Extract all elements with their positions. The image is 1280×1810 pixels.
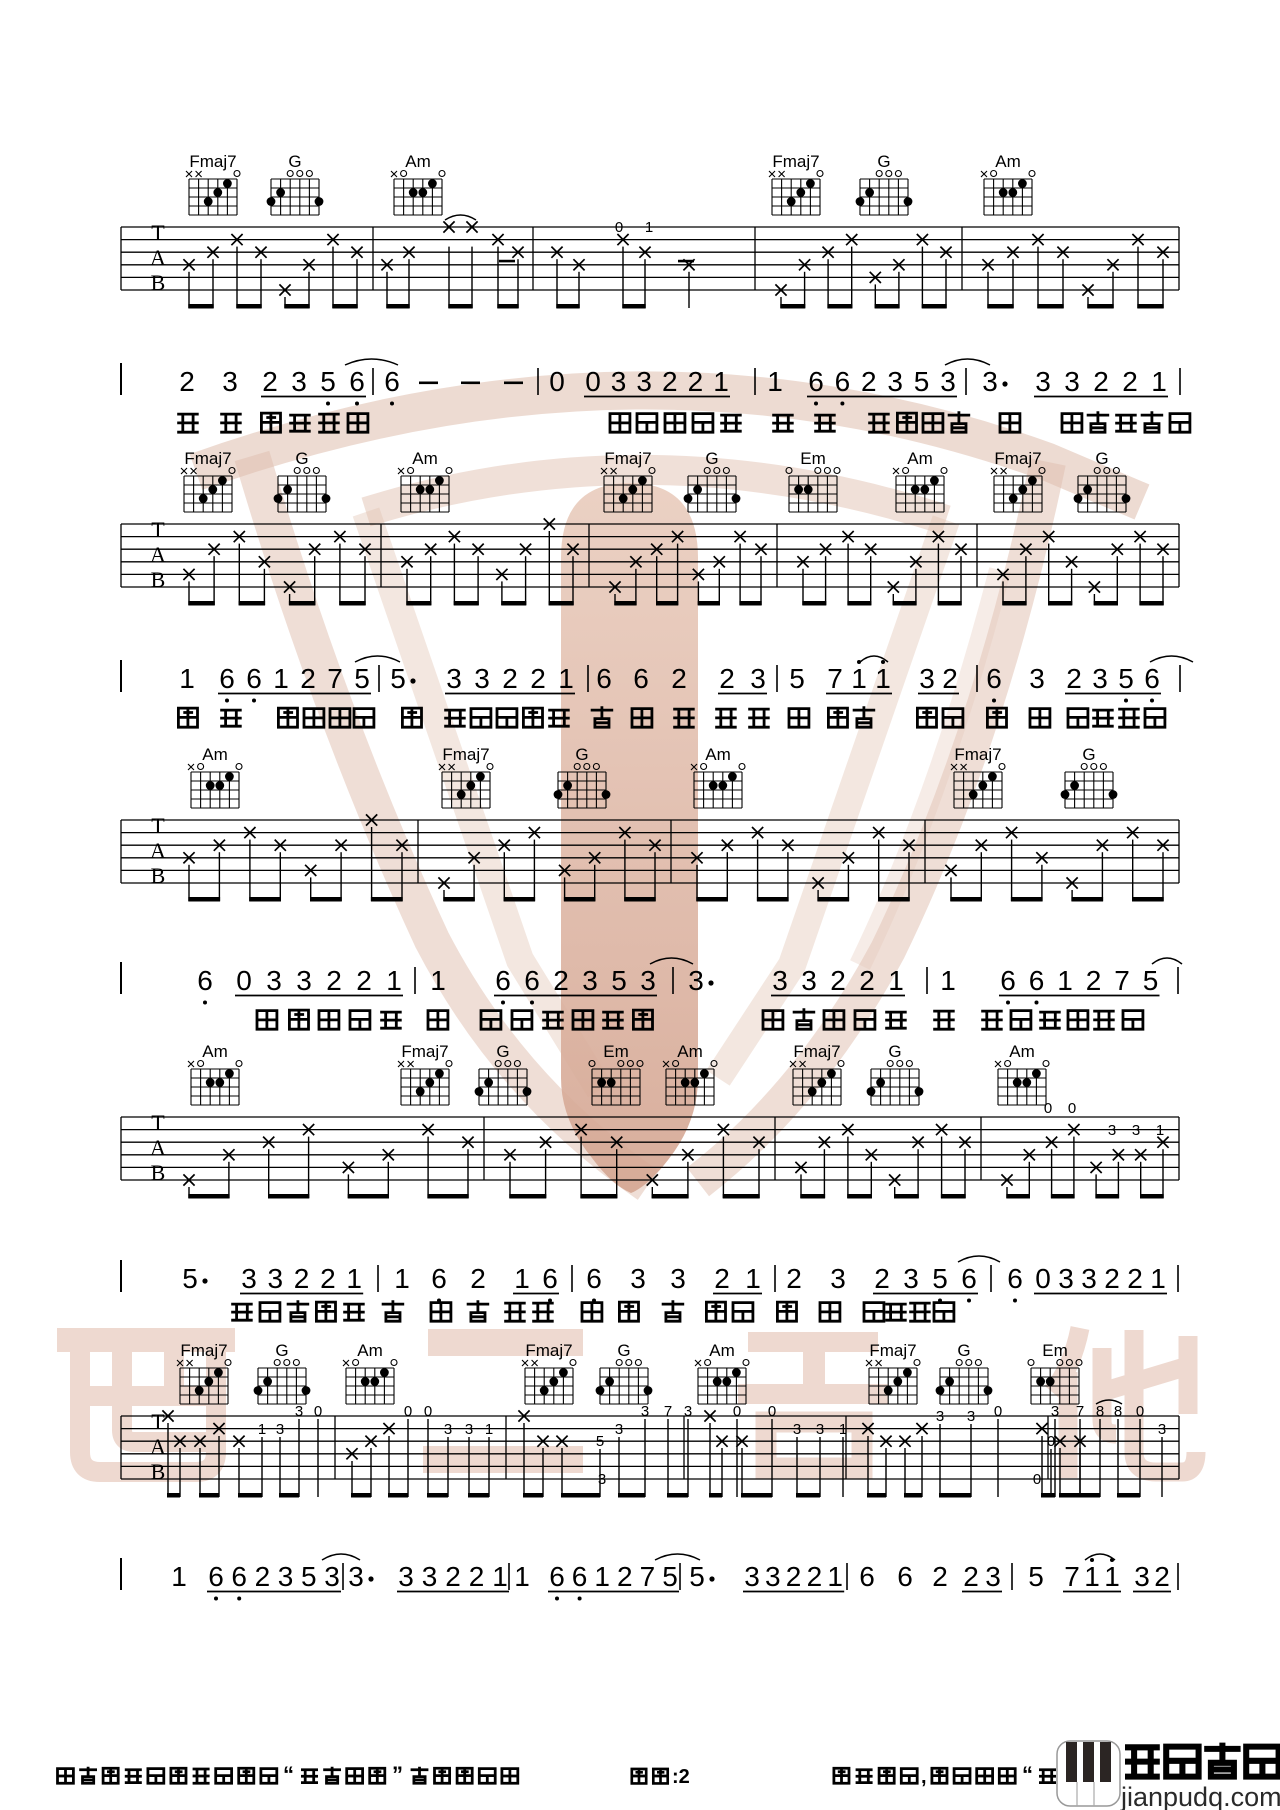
svg-text:“: “ [1022, 1762, 1033, 1787]
svg-text:Em: Em [1042, 1341, 1068, 1360]
svg-text:1: 1 [1104, 1561, 1120, 1592]
svg-text:5: 5 [390, 663, 406, 694]
svg-text:6: 6 [1029, 965, 1045, 996]
svg-text:3: 3 [422, 1561, 438, 1592]
svg-text:1: 1 [179, 663, 195, 694]
svg-text:0: 0 [1033, 1471, 1041, 1488]
svg-text:7: 7 [327, 663, 343, 694]
svg-text:7: 7 [1064, 1561, 1080, 1592]
svg-text:3: 3 [967, 1408, 975, 1425]
svg-text:Em: Em [603, 1042, 629, 1061]
svg-text:2: 2 [859, 965, 875, 996]
svg-text:2: 2 [553, 965, 569, 996]
svg-text:5: 5 [662, 1561, 678, 1592]
svg-text:G: G [888, 1042, 901, 1061]
svg-text:6: 6 [572, 1561, 588, 1592]
svg-text:1: 1 [485, 1421, 493, 1438]
svg-text:1: 1 [745, 1263, 761, 1294]
svg-text:3: 3 [398, 1561, 414, 1592]
svg-text:2: 2 [326, 965, 342, 996]
svg-text:Am: Am [1009, 1042, 1035, 1061]
svg-text:1: 1 [888, 965, 904, 996]
svg-text:3: 3 [1132, 1122, 1140, 1139]
svg-text:0: 0 [768, 1403, 776, 1420]
svg-text:G: G [575, 745, 588, 764]
svg-text:2: 2 [262, 366, 278, 397]
svg-text:1: 1 [1151, 366, 1167, 397]
svg-text:3: 3 [630, 1263, 646, 1294]
svg-text:6: 6 [586, 1263, 602, 1294]
svg-text:2: 2 [470, 1263, 486, 1294]
svg-text:2: 2 [719, 663, 735, 694]
svg-text:3: 3 [830, 1263, 846, 1294]
svg-text:0: 0 [314, 1403, 322, 1420]
svg-text:2: 2 [714, 1263, 730, 1294]
svg-text:T: T [151, 1110, 165, 1135]
svg-text:1: 1 [346, 1263, 362, 1294]
svg-text:3: 3 [276, 1421, 284, 1438]
svg-text:A: A [150, 542, 166, 567]
svg-text:Am: Am [709, 1341, 735, 1360]
svg-text:G: G [1095, 449, 1108, 468]
svg-text:B: B [151, 270, 166, 295]
svg-text:G: G [877, 152, 890, 171]
svg-text:5: 5 [1143, 965, 1159, 996]
svg-text:,: , [921, 1766, 927, 1788]
svg-text:2: 2 [617, 1561, 633, 1592]
svg-text:2: 2 [294, 1263, 310, 1294]
svg-text:1: 1 [645, 219, 653, 236]
svg-text:5: 5 [354, 663, 370, 694]
svg-text:3: 3 [750, 663, 766, 694]
svg-text:G: G [617, 1341, 630, 1360]
svg-text:0: 0 [585, 366, 601, 397]
svg-text:G: G [295, 449, 308, 468]
svg-text:T: T [151, 220, 165, 245]
svg-text:3: 3 [1058, 1263, 1074, 1294]
svg-text:6: 6 [897, 1561, 913, 1592]
svg-text:3: 3 [1051, 1403, 1059, 1420]
svg-text:Fmaj7: Fmaj7 [180, 1341, 227, 1360]
svg-text:Fmaj7: Fmaj7 [954, 745, 1001, 764]
svg-text:2: 2 [445, 1561, 461, 1592]
svg-text:3: 3 [1064, 366, 1080, 397]
svg-text:3: 3 [919, 663, 935, 694]
svg-text:A: A [150, 1135, 166, 1160]
svg-text:1: 1 [1057, 965, 1073, 996]
svg-text:0: 0 [733, 1403, 741, 1420]
svg-text:6: 6 [859, 1561, 875, 1592]
svg-text:3: 3 [744, 1561, 760, 1592]
svg-text:3: 3 [982, 366, 998, 397]
svg-text:Fmaj7: Fmaj7 [189, 152, 236, 171]
svg-text:0: 0 [424, 1403, 432, 1420]
svg-text:3: 3 [985, 1561, 1001, 1592]
svg-text:3: 3 [940, 366, 956, 397]
svg-text:1: 1 [1084, 1561, 1100, 1592]
svg-text:2: 2 [671, 663, 687, 694]
svg-text:1: 1 [492, 1561, 508, 1592]
svg-text:Fmaj7: Fmaj7 [793, 1042, 840, 1061]
svg-text:Fmaj7: Fmaj7 [442, 745, 489, 764]
svg-text:3: 3 [474, 663, 490, 694]
svg-text:1: 1 [430, 965, 446, 996]
svg-text:2: 2 [1093, 366, 1109, 397]
svg-text:1: 1 [258, 1421, 266, 1438]
svg-text:3: 3 [765, 1561, 781, 1592]
svg-text:Am: Am [357, 1341, 383, 1360]
svg-text:6: 6 [208, 1561, 224, 1592]
svg-text:2: 2 [786, 1561, 802, 1592]
svg-text:5: 5 [1118, 663, 1134, 694]
svg-text:jianpudq.com: jianpudq.com [1120, 1782, 1280, 1810]
svg-text:3: 3 [903, 1263, 919, 1294]
svg-text:6: 6 [835, 366, 851, 397]
svg-text:3: 3 [688, 965, 704, 996]
svg-text:3: 3 [772, 965, 788, 996]
svg-text:6: 6 [1144, 663, 1160, 694]
svg-text:3: 3 [684, 1403, 692, 1420]
svg-text:1: 1 [594, 1561, 610, 1592]
svg-text:Fmaj7: Fmaj7 [184, 449, 231, 468]
svg-text:2: 2 [807, 1561, 823, 1592]
svg-text:3: 3 [1092, 663, 1108, 694]
svg-text:2: 2 [942, 663, 958, 694]
svg-text:3: 3 [1134, 1561, 1150, 1592]
svg-text:6: 6 [384, 366, 400, 397]
svg-text:3: 3 [296, 965, 312, 996]
svg-text:3: 3 [801, 965, 817, 996]
svg-text:0: 0 [236, 965, 252, 996]
svg-text:B: B [151, 863, 166, 888]
svg-text:6: 6 [246, 663, 262, 694]
svg-text:3: 3 [636, 366, 652, 397]
svg-text:6: 6 [197, 965, 213, 996]
svg-text:B: B [151, 1459, 166, 1484]
svg-text:3: 3 [1029, 663, 1045, 694]
svg-text:Fmaj7: Fmaj7 [869, 1341, 916, 1360]
svg-text:2: 2 [1154, 1561, 1170, 1592]
svg-text:1: 1 [514, 1561, 530, 1592]
svg-text:8: 8 [1114, 1403, 1122, 1420]
svg-text:2: 2 [963, 1561, 979, 1592]
svg-text:2: 2 [1104, 1263, 1120, 1294]
svg-text:6: 6 [349, 366, 365, 397]
svg-text:Fmaj7: Fmaj7 [525, 1341, 572, 1360]
svg-text:”: ” [392, 1762, 403, 1787]
svg-text:7: 7 [664, 1403, 672, 1420]
svg-text:7: 7 [1076, 1403, 1084, 1420]
svg-text:8: 8 [1096, 1403, 1104, 1420]
svg-text:6: 6 [495, 965, 511, 996]
svg-text:2: 2 [932, 1561, 948, 1592]
svg-text:2: 2 [786, 1263, 802, 1294]
svg-text:3: 3 [611, 366, 627, 397]
svg-text:3: 3 [268, 1263, 284, 1294]
svg-text:T: T [151, 813, 165, 838]
svg-text:6: 6 [1007, 1263, 1023, 1294]
svg-text:7: 7 [1114, 965, 1130, 996]
svg-text:1: 1 [767, 366, 783, 397]
svg-text:6: 6 [961, 1263, 977, 1294]
svg-text:6: 6 [986, 663, 1002, 694]
svg-text:3: 3 [241, 1263, 257, 1294]
svg-text:Fmaj7: Fmaj7 [772, 152, 819, 171]
svg-text:3: 3 [1035, 366, 1051, 397]
svg-text:0: 0 [615, 219, 623, 236]
svg-text:G: G [496, 1042, 509, 1061]
svg-text:Am: Am [412, 449, 438, 468]
svg-text:1: 1 [558, 663, 574, 694]
svg-text:2: 2 [530, 663, 546, 694]
svg-text:3: 3 [348, 1561, 364, 1592]
svg-text:1: 1 [851, 663, 867, 694]
svg-text:2: 2 [502, 663, 518, 694]
svg-text:3: 3 [1158, 1421, 1166, 1438]
svg-text:5: 5 [932, 1263, 948, 1294]
svg-text:G: G [288, 152, 301, 171]
svg-text:0: 0 [994, 1403, 1002, 1420]
svg-text:1: 1 [273, 663, 289, 694]
svg-text:3: 3 [324, 1561, 340, 1592]
svg-text:6: 6 [1000, 965, 1016, 996]
svg-text:1: 1 [827, 1561, 843, 1592]
svg-text:5: 5 [789, 663, 805, 694]
svg-text:Am: Am [202, 1042, 228, 1061]
svg-text:3: 3 [598, 1471, 606, 1488]
svg-text:Am: Am [907, 449, 933, 468]
svg-text:T: T [151, 517, 165, 542]
svg-text:3: 3 [465, 1421, 473, 1438]
svg-text:G: G [275, 1341, 288, 1360]
svg-text:0: 0 [1035, 1263, 1051, 1294]
svg-text:1: 1 [1156, 1122, 1164, 1139]
svg-text:0: 0 [1047, 1433, 1055, 1450]
svg-text:3: 3 [816, 1421, 824, 1438]
svg-text:1: 1 [514, 1263, 530, 1294]
svg-text:Am: Am [405, 152, 431, 171]
svg-text:1: 1 [386, 965, 402, 996]
svg-text:Am: Am [202, 745, 228, 764]
svg-text:6: 6 [219, 663, 235, 694]
svg-text:Fmaj7: Fmaj7 [401, 1042, 448, 1061]
svg-text:A: A [150, 838, 166, 863]
svg-text:2: 2 [830, 965, 846, 996]
svg-text:1: 1 [394, 1263, 410, 1294]
svg-text:3: 3 [222, 366, 238, 397]
svg-text:5: 5 [301, 1561, 317, 1592]
svg-text:B: B [151, 1160, 166, 1185]
svg-text:3: 3 [266, 965, 282, 996]
svg-text:5: 5 [689, 1561, 705, 1592]
svg-text:0: 0 [1136, 1403, 1144, 1420]
svg-text:Fmaj7: Fmaj7 [604, 449, 651, 468]
svg-text::2: :2 [672, 1766, 690, 1788]
svg-text:3: 3 [670, 1263, 686, 1294]
svg-text:3: 3 [278, 1561, 294, 1592]
svg-text:3: 3 [615, 1421, 623, 1438]
svg-text:0: 0 [404, 1403, 412, 1420]
svg-text:2: 2 [255, 1561, 271, 1592]
svg-text:6: 6 [524, 965, 540, 996]
svg-text:6: 6 [808, 366, 824, 397]
svg-text:G: G [957, 1341, 970, 1360]
svg-text:2: 2 [356, 965, 372, 996]
svg-text:1: 1 [1150, 1263, 1166, 1294]
svg-text:2: 2 [179, 366, 195, 397]
svg-text:3: 3 [446, 663, 462, 694]
svg-text:6: 6 [231, 1561, 247, 1592]
svg-text:6: 6 [542, 1263, 558, 1294]
svg-text:1: 1 [839, 1421, 847, 1438]
svg-text:7: 7 [827, 663, 843, 694]
svg-text:5: 5 [320, 366, 336, 397]
svg-text:3: 3 [640, 965, 656, 996]
svg-text:Am: Am [995, 152, 1021, 171]
svg-text:2: 2 [1066, 663, 1082, 694]
svg-text:2: 2 [1086, 965, 1102, 996]
svg-text:6: 6 [596, 663, 612, 694]
svg-text:2: 2 [300, 663, 316, 694]
svg-text:Am: Am [705, 745, 731, 764]
svg-text:Am: Am [677, 1042, 703, 1061]
svg-text:3: 3 [793, 1421, 801, 1438]
svg-text:2: 2 [1127, 1263, 1143, 1294]
svg-text:6: 6 [549, 1561, 565, 1592]
svg-text:A: A [150, 245, 166, 270]
svg-text:3: 3 [887, 366, 903, 397]
svg-text:2: 2 [688, 366, 704, 397]
svg-text:0: 0 [549, 366, 565, 397]
svg-text:3: 3 [444, 1421, 452, 1438]
svg-text:Fmaj7: Fmaj7 [994, 449, 1041, 468]
svg-text:2: 2 [469, 1561, 485, 1592]
svg-text:5: 5 [596, 1433, 604, 1450]
svg-text:2: 2 [1122, 366, 1138, 397]
svg-text:2: 2 [874, 1263, 890, 1294]
svg-text:3: 3 [1108, 1122, 1116, 1139]
svg-text:1: 1 [171, 1561, 187, 1592]
svg-text:G: G [705, 449, 718, 468]
svg-text:5: 5 [182, 1263, 198, 1294]
svg-text:3: 3 [582, 965, 598, 996]
svg-text:3: 3 [641, 1403, 649, 1420]
svg-text:B: B [151, 567, 166, 592]
svg-text:0: 0 [1044, 1100, 1052, 1117]
svg-text:2: 2 [861, 366, 877, 397]
svg-text:1: 1 [875, 663, 891, 694]
svg-text:7: 7 [640, 1561, 656, 1592]
svg-text:3: 3 [1081, 1263, 1097, 1294]
svg-text:6: 6 [431, 1263, 447, 1294]
svg-text:3: 3 [291, 366, 307, 397]
svg-text:“: “ [283, 1762, 294, 1787]
svg-text:6: 6 [633, 663, 649, 694]
svg-text:1: 1 [713, 366, 729, 397]
svg-text:3: 3 [295, 1403, 303, 1420]
svg-text:3: 3 [936, 1408, 944, 1425]
svg-text:5: 5 [914, 366, 930, 397]
svg-text:A: A [150, 1434, 166, 1459]
svg-text:5: 5 [1028, 1561, 1044, 1592]
svg-text:1: 1 [940, 965, 956, 996]
svg-text:Em: Em [800, 449, 826, 468]
svg-text:G: G [1082, 745, 1095, 764]
svg-text:2: 2 [662, 366, 678, 397]
svg-text:2: 2 [320, 1263, 336, 1294]
svg-text:0: 0 [1068, 1100, 1076, 1117]
svg-text:5: 5 [611, 965, 627, 996]
